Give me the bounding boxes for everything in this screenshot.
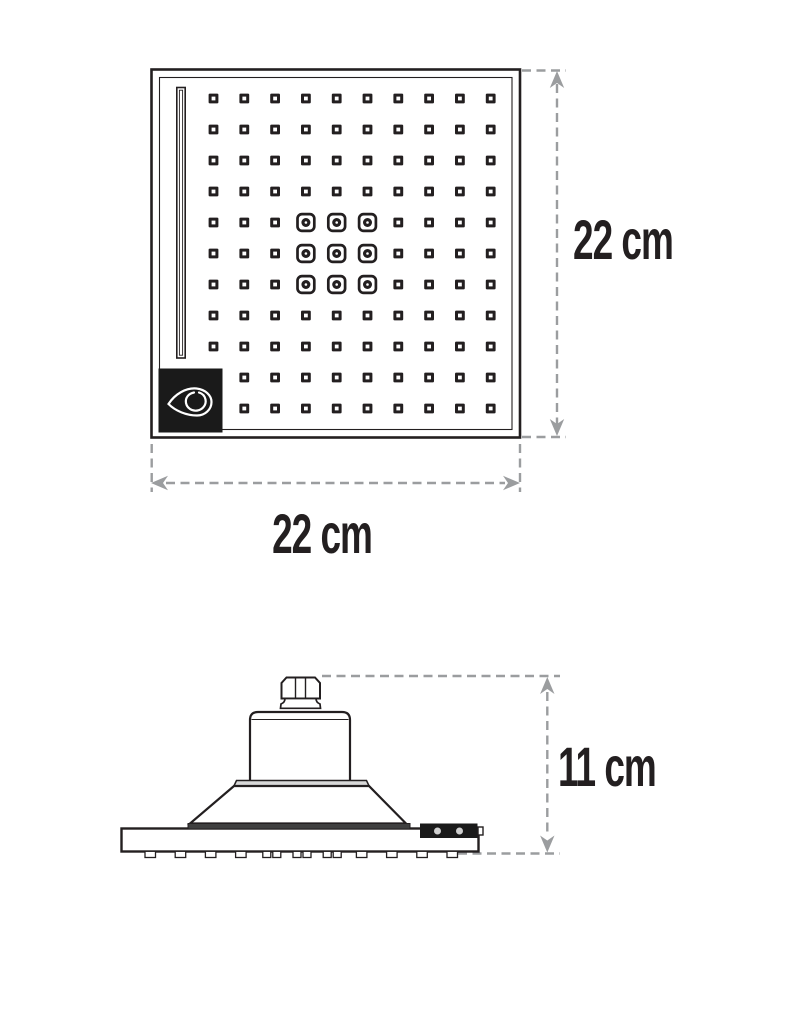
arrow-down-icon — [540, 836, 554, 853]
nozzle — [209, 342, 219, 352]
mounting-bracket — [420, 824, 478, 839]
nozzle — [239, 342, 249, 352]
nozzle — [270, 280, 280, 290]
nozzle — [363, 311, 373, 321]
rim-band — [188, 824, 410, 830]
nozzle — [486, 311, 496, 321]
nozzle — [486, 373, 496, 383]
nozzle — [363, 187, 373, 197]
top-view-width-label: 22 cm — [272, 506, 372, 562]
nozzle — [486, 342, 496, 352]
top-view-width-dimension — [151, 444, 520, 492]
nozzle-large — [298, 214, 315, 231]
nozzle — [424, 311, 434, 321]
side-spray-slot — [177, 88, 185, 359]
arrow-left-icon — [151, 476, 168, 490]
nozzle-large — [328, 214, 345, 231]
nozzle — [455, 94, 465, 104]
nozzle — [455, 218, 465, 228]
nozzle-tab — [417, 851, 428, 857]
nozzle-tab — [145, 851, 156, 857]
nozzle — [301, 342, 311, 352]
nozzle — [239, 280, 249, 290]
side-view-height-label: 11 cm — [558, 739, 656, 795]
nozzle — [455, 125, 465, 135]
nozzle — [270, 404, 280, 414]
nozzle-large — [328, 276, 345, 293]
nozzle — [270, 373, 280, 383]
nozzle — [486, 156, 496, 166]
nozzle-large — [359, 214, 376, 231]
nozzle — [270, 311, 280, 321]
nozzle-tab — [236, 851, 247, 857]
nozzle-tab — [175, 851, 186, 857]
top-view-height-dimension — [522, 71, 566, 438]
nozzle — [424, 187, 434, 197]
nozzle — [270, 156, 280, 166]
nozzle — [393, 311, 403, 321]
nozzle — [301, 404, 311, 414]
nozzle — [393, 218, 403, 228]
arrow-up-icon — [540, 677, 554, 694]
nozzle — [363, 373, 373, 383]
top-view-faceplate — [152, 70, 521, 438]
nozzle — [393, 156, 403, 166]
nozzle-tab — [447, 851, 458, 857]
nozzle — [332, 94, 342, 104]
nozzle — [209, 311, 219, 321]
shower-head-dimension-diagram: 22 cm 22 cm 11 cm — [0, 0, 800, 1018]
nozzle — [424, 249, 434, 259]
cone-skirt — [190, 786, 406, 824]
nozzle — [424, 218, 434, 228]
nozzle — [486, 94, 496, 104]
nozzle-large — [359, 245, 376, 262]
nozzle-large — [359, 276, 376, 293]
nozzle — [332, 156, 342, 166]
bracket-screw-icon — [456, 828, 463, 835]
nozzle — [332, 187, 342, 197]
nozzle — [486, 280, 496, 290]
nozzle — [301, 156, 311, 166]
nozzle — [393, 249, 403, 259]
nozzle — [239, 125, 249, 135]
nozzle — [363, 94, 373, 104]
nozzle — [486, 249, 496, 259]
nozzle — [486, 187, 496, 197]
nozzle — [455, 342, 465, 352]
nozzle — [332, 125, 342, 135]
nozzle — [455, 373, 465, 383]
logo-background — [159, 369, 223, 433]
nozzle — [424, 156, 434, 166]
bracket-screw-icon — [434, 828, 441, 835]
nozzle — [270, 249, 280, 259]
nozzle-tab — [356, 851, 367, 857]
nozzle — [393, 280, 403, 290]
nozzle — [363, 404, 373, 414]
nozzle — [301, 187, 311, 197]
nozzle-large — [298, 276, 315, 293]
nozzle — [270, 342, 280, 352]
nozzle — [209, 125, 219, 135]
nozzle — [424, 404, 434, 414]
nozzle — [455, 280, 465, 290]
nozzle — [455, 187, 465, 197]
nozzle — [332, 342, 342, 352]
nozzle — [301, 311, 311, 321]
nozzle-tab — [205, 851, 216, 857]
nozzle — [393, 94, 403, 104]
nozzle — [486, 404, 496, 414]
nozzle-large — [298, 245, 315, 262]
nozzle — [332, 404, 342, 414]
nozzle — [393, 125, 403, 135]
nozzle — [301, 373, 311, 383]
nozzle — [209, 94, 219, 104]
bracket-body — [420, 824, 478, 839]
nozzle — [393, 404, 403, 414]
nozzle — [270, 218, 280, 228]
nozzle — [486, 125, 496, 135]
nozzle — [239, 404, 249, 414]
arrow-right-icon — [503, 476, 520, 490]
nozzle — [209, 249, 219, 259]
nozzle — [239, 94, 249, 104]
nozzle — [424, 94, 434, 104]
connector-neck — [281, 699, 321, 709]
nozzle — [270, 187, 280, 197]
nozzle — [424, 280, 434, 290]
nozzle — [393, 187, 403, 197]
nozzle — [239, 218, 249, 228]
nozzle — [209, 280, 219, 290]
nozzle — [424, 342, 434, 352]
nozzle — [455, 311, 465, 321]
nozzle — [301, 94, 311, 104]
nozzle — [270, 94, 280, 104]
nozzle — [209, 187, 219, 197]
bracket-tab — [478, 827, 483, 835]
nozzle — [270, 125, 280, 135]
nozzle — [239, 249, 249, 259]
nozzle — [363, 125, 373, 135]
body-cylinder — [250, 712, 350, 782]
nozzle — [332, 373, 342, 383]
nozzle — [455, 249, 465, 259]
nozzle — [239, 187, 249, 197]
nozzle — [486, 218, 496, 228]
nozzle — [393, 373, 403, 383]
nozzle — [455, 404, 465, 414]
diagram-canvas — [0, 0, 800, 1018]
nozzle — [332, 311, 342, 321]
nozzle — [424, 373, 434, 383]
nozzle — [239, 156, 249, 166]
nozzle — [424, 125, 434, 135]
nozzle — [209, 156, 219, 166]
side-view-profile — [122, 678, 484, 858]
nozzle-large — [328, 245, 345, 262]
nozzle — [393, 342, 403, 352]
connector-nut — [282, 678, 321, 699]
nozzle — [301, 125, 311, 135]
nozzle — [455, 156, 465, 166]
nozzle — [239, 311, 249, 321]
nozzle — [363, 342, 373, 352]
brand-logo — [159, 369, 223, 433]
nozzle-tab — [387, 851, 398, 857]
nozzle — [363, 156, 373, 166]
nozzle — [209, 218, 219, 228]
top-view-height-label: 22 cm — [573, 212, 673, 268]
nozzle — [239, 373, 249, 383]
